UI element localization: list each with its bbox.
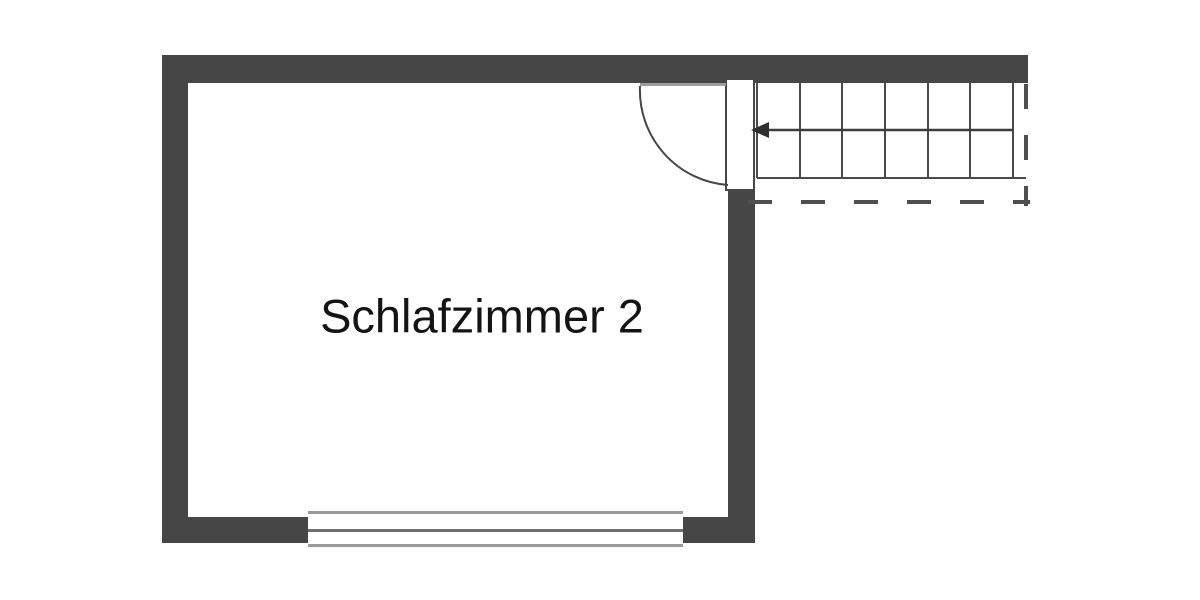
room-label: Schlafzimmer 2 bbox=[320, 289, 644, 344]
wall-bottom-left bbox=[162, 517, 308, 543]
door-closed-line bbox=[640, 83, 726, 86]
door-swing-arc bbox=[640, 86, 728, 185]
staircase bbox=[748, 83, 1030, 206]
window-symbol bbox=[308, 511, 683, 547]
wall-top bbox=[162, 55, 1028, 83]
wall-left bbox=[162, 55, 188, 543]
wall-right bbox=[728, 190, 755, 543]
door-leaf bbox=[725, 78, 755, 191]
floorplan-canvas: Schlafzimmer 2 bbox=[0, 0, 1200, 600]
window-glass-line bbox=[308, 529, 683, 532]
